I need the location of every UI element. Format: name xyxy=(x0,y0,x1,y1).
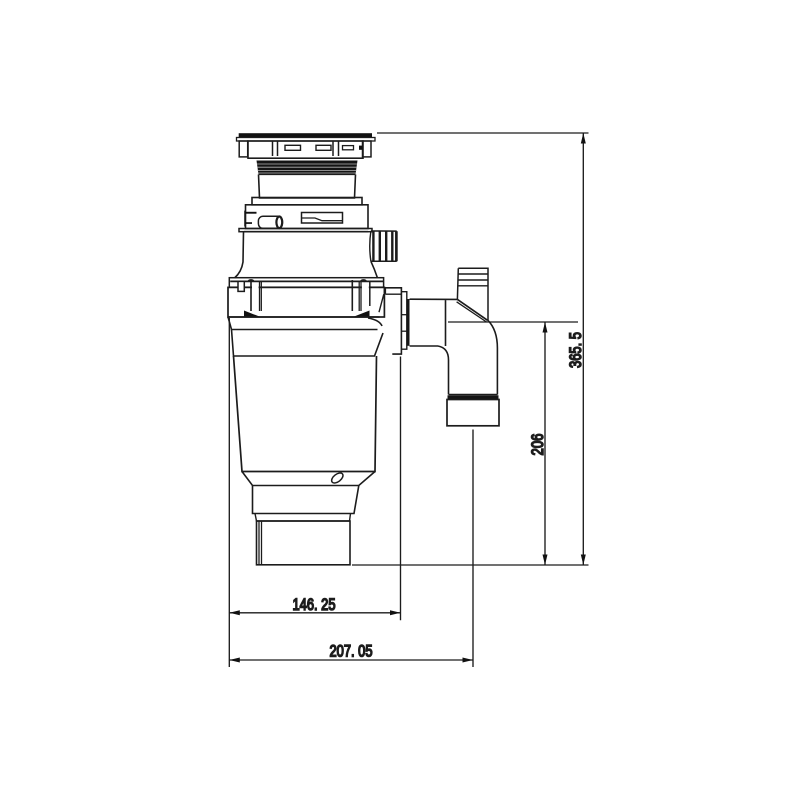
svg-text:206: 206 xyxy=(529,434,547,456)
svg-text:365. 5: 365. 5 xyxy=(567,332,585,368)
svg-text:146. 25: 146. 25 xyxy=(293,596,336,614)
svg-text:207. 05: 207. 05 xyxy=(330,643,373,661)
